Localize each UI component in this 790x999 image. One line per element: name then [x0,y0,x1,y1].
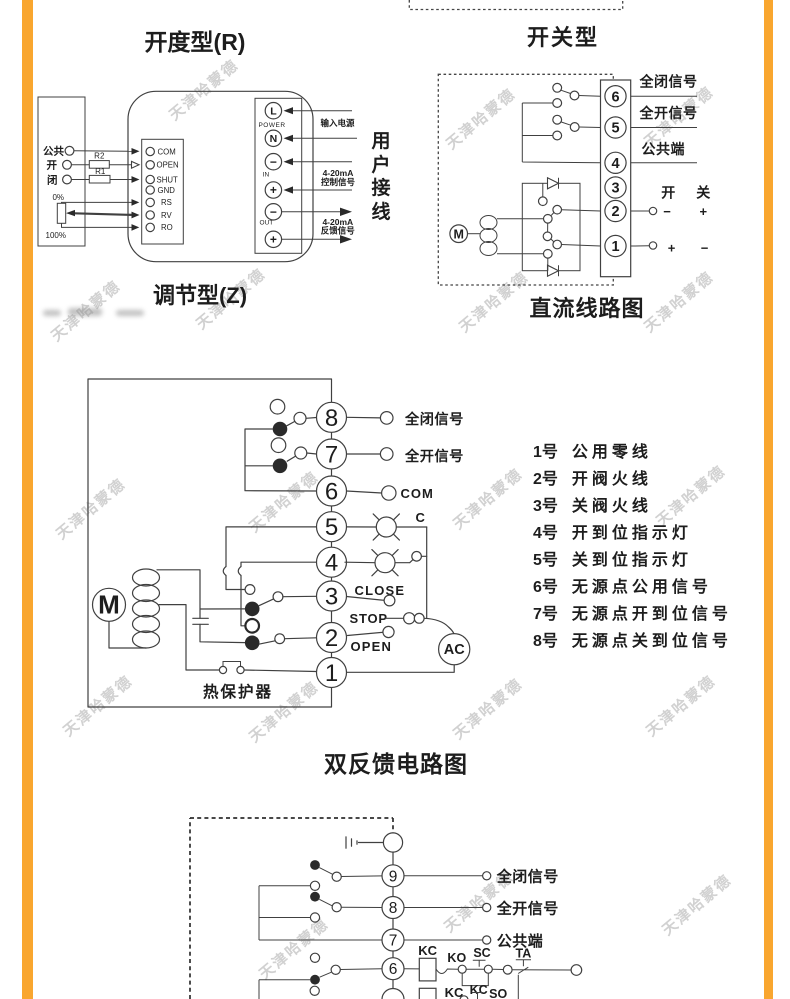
open-label: 开 [661,184,675,200]
terminal-number: 4 [611,156,619,172]
relay-label: KC [418,943,437,958]
relay-label: TA [516,946,532,960]
thermal-protector-label: 热保护器 [203,682,273,701]
power-pin: + [270,233,277,247]
ac-source-label: AC [444,642,465,658]
relay-label: SC [473,946,490,960]
arrow-label: 输入电源 [320,118,355,128]
power-pin: L [270,106,277,118]
board-pin: COM [158,147,176,156]
ac-wiring-diagram: 9 8 7 6 全闭信号 全开信号 公共端 KC KO SC [190,818,582,999]
switch-type-diagram: M 6 5 4 3 2 1 [409,0,710,285]
open-contact-label: OPEN [351,639,393,654]
terminal-number: 9 [389,868,398,885]
terminal-number: 1 [325,660,338,687]
terminal-number: 7 [325,442,338,469]
terminal-number: 3 [325,584,338,611]
resistor-label: R2 [94,152,105,161]
circuit-linework: 公共 开 闭 R2 R1 0% 100% [0,0,790,999]
motor-label: M [98,590,120,620]
terminal-number: 5 [611,121,619,137]
signal-label: 公共端 [642,141,686,157]
stop-contact-label: STOP [350,611,388,626]
power-group-label: IN [263,172,270,179]
board-pin: RO [161,223,173,232]
terminal-label: 开 [47,160,58,172]
arrow-label: 控制信号 [321,177,356,187]
board-pin: RS [161,198,172,207]
board-pin: GND [158,186,176,195]
terminal-number: 2 [325,625,338,652]
signal-label: 全开信号 [496,899,559,917]
terminal-number: 6 [389,961,398,978]
polarity: + [700,204,708,219]
relay-label: KO [447,951,466,965]
terminal-number: 6 [325,479,338,506]
motor-label: M [453,227,463,241]
double-feedback-diagram: M 热保护器 8 7 6 5 4 3 2 1 [88,379,470,707]
terminal-number: 2 [611,204,619,220]
pot-label: 0% [52,193,64,202]
signal-label: 全闭信号 [639,74,698,90]
signal-label: 全闭信号 [404,411,464,428]
pot-label: 100% [46,231,66,240]
close-label: 关 [696,184,710,200]
terminal-number: 7 [389,933,398,950]
terminal-number: 4 [325,550,338,577]
terminal-number: 6 [611,89,619,105]
signal-label: 全开信号 [404,448,464,465]
board-pin: OPEN [157,161,179,170]
board-pin: SHUT [157,175,178,184]
scanned-wiring-sheet: 天津哈蒙德天津哈蒙德天津哈蒙德天津哈蒙德天津哈蒙德天津哈蒙德天津哈蒙德天津哈蒙德… [0,0,790,999]
terminal-number: 8 [389,900,398,917]
terminal-number: 5 [325,514,338,541]
terminal-number: 8 [325,405,338,432]
power-group-label: OUT [260,219,274,226]
close-contact-label: CLOSE [355,583,406,598]
resistor-label: R1 [95,167,106,176]
terminal-number: 1 [611,239,619,255]
signal-label: COM [401,486,434,501]
signal-label: 全开信号 [639,105,698,121]
arrow-label: 反馈信号 [321,226,356,236]
board-pin: RV [161,211,172,220]
lamp-label: C [416,510,426,525]
polarity: − [663,204,671,219]
power-pin: − [270,155,277,169]
terminal-label: 公共 [43,144,64,157]
power-pin: − [270,205,277,219]
relay-label: KC [470,983,488,997]
power-group-label: POWER [258,122,285,129]
power-pin: + [270,183,277,197]
opening-type-diagram: 公共 开 闭 R2 R1 0% 100% [38,91,357,261]
polarity: + [668,240,676,255]
terminal-label: 闭 [47,173,58,186]
power-pin: N [270,133,278,145]
terminal-number: 3 [611,181,619,197]
polarity: − [701,240,709,255]
relay-label: SO [489,987,507,999]
signal-label: 全闭信号 [496,867,559,885]
